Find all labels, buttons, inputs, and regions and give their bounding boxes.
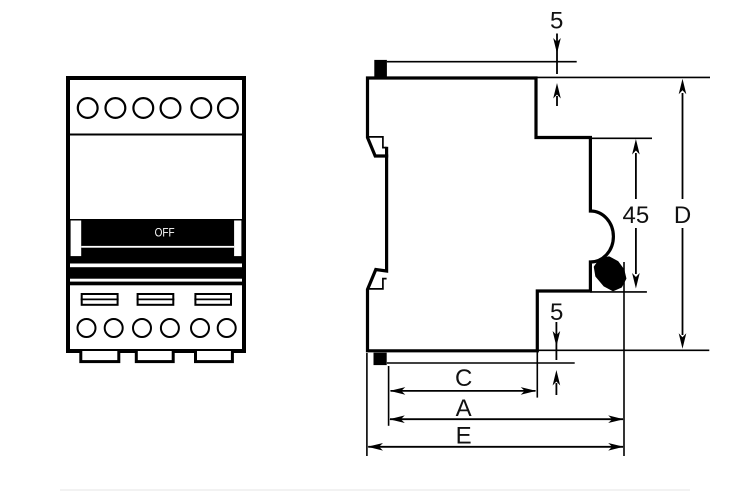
svg-text:C: C xyxy=(455,365,472,392)
svg-text:A: A xyxy=(456,395,472,422)
svg-text:E: E xyxy=(456,423,472,450)
svg-text:45: 45 xyxy=(623,202,650,229)
svg-text:OFF: OFF xyxy=(155,225,175,239)
svg-text:5: 5 xyxy=(550,299,563,326)
svg-text:5: 5 xyxy=(550,7,563,34)
svg-text:D: D xyxy=(674,202,691,229)
